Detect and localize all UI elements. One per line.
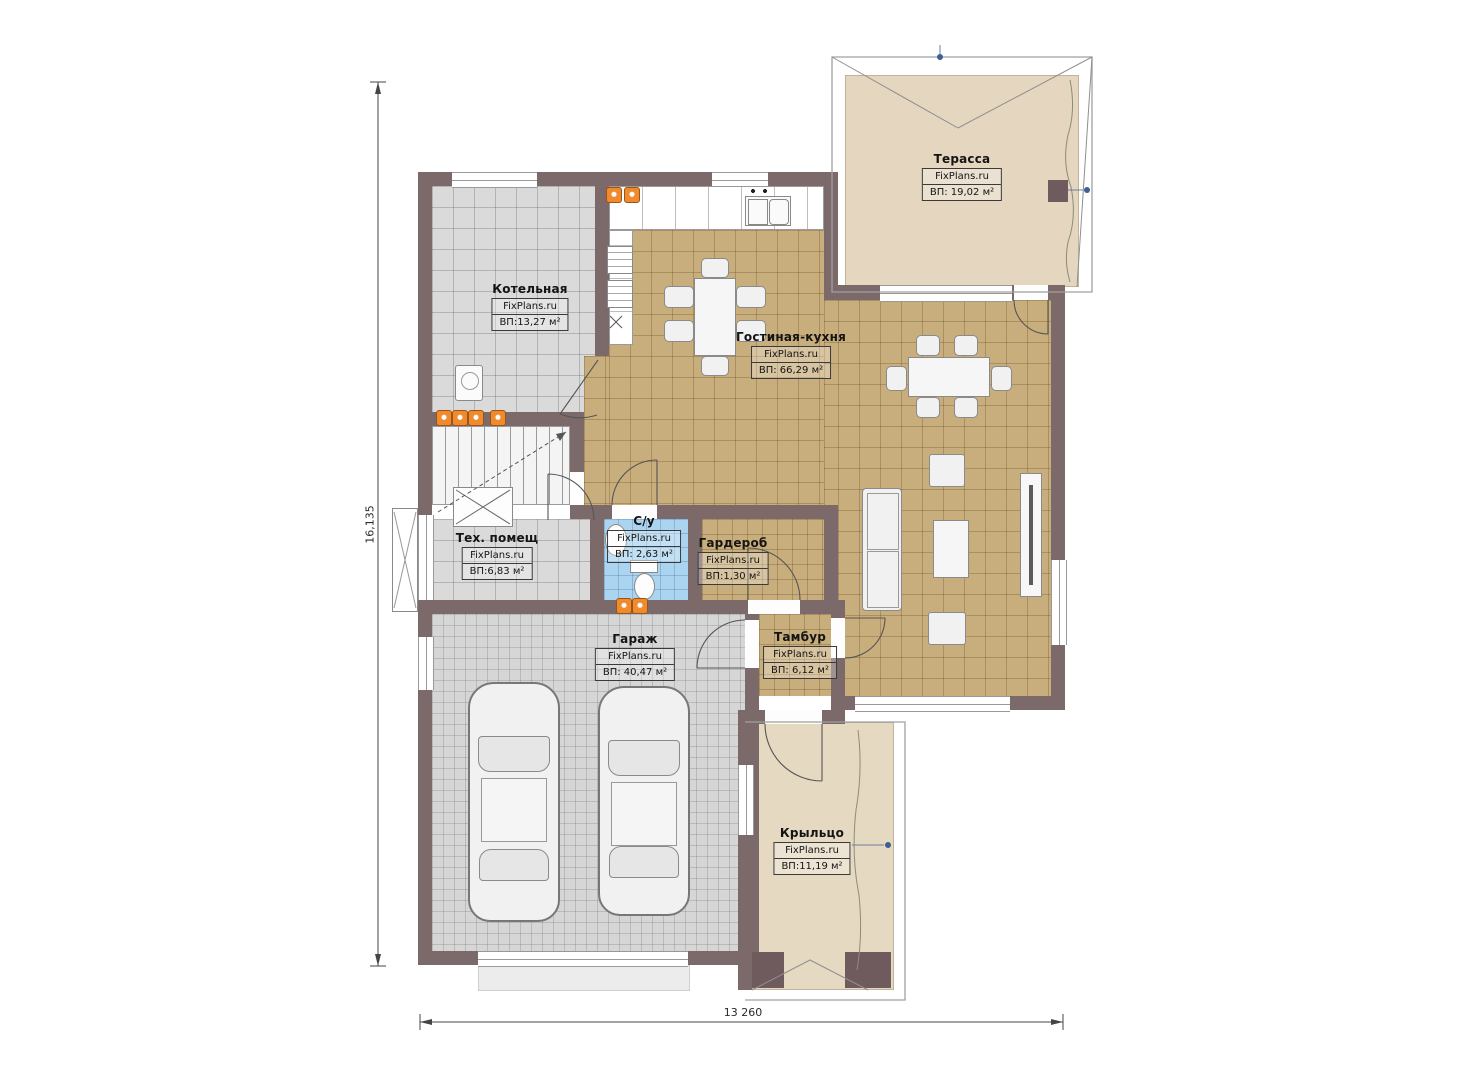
- room-info-box: FixPlans.ru ВП: 2,63 м²: [607, 530, 681, 563]
- watermark: FixPlans.ru: [608, 531, 680, 546]
- room-area: ВП:13,27 м²: [492, 314, 567, 330]
- room-info-box: FixPlans.ru ВП: 66,29 м²: [751, 346, 831, 379]
- chair: [886, 366, 907, 391]
- room-label-tech: Тех. помещ FixPlans.ru ВП:6,83 м²: [456, 531, 539, 580]
- tv-screen: [1029, 485, 1033, 585]
- kitchen-sink-basin-right: [769, 199, 789, 225]
- room-label-garage: Гараж FixPlans.ru ВП: 40,47 м²: [595, 632, 675, 681]
- room-info-box: FixPlans.ru ВП:13,27 м²: [491, 298, 568, 331]
- room-area: ВП:1,30 м²: [699, 568, 768, 584]
- chair: [954, 335, 978, 356]
- dim-arrow: [420, 1019, 432, 1025]
- room-area: ВП: 19,02 м²: [923, 184, 1001, 200]
- wall-kitchen-east: [824, 172, 838, 300]
- dimension-label-horizontal: 13 260: [698, 1006, 788, 1019]
- room-area: ВП: 2,63 м²: [608, 546, 680, 562]
- chair: [954, 397, 978, 418]
- sofa-cushion: [867, 551, 899, 608]
- room-label-wardrobe: Гардероб FixPlans.ru ВП:1,30 м²: [698, 536, 769, 585]
- watermark: FixPlans.ru: [463, 548, 532, 563]
- radiator-symbol: [624, 187, 640, 203]
- room-info-box: FixPlans.ru ВП:1,30 м²: [698, 552, 769, 585]
- room-name: Гостиная-кухня: [736, 330, 846, 344]
- room-area: ВП: 6,12 м²: [764, 662, 836, 678]
- room-area: ВП:11,19 м²: [774, 858, 849, 874]
- floor-plan-canvas: Терасса FixPlans.ru ВП: 19,02 м² Котельн…: [0, 0, 1474, 1080]
- room-info-box: FixPlans.ru ВП:6,83 м²: [462, 547, 533, 580]
- room-label-vestibule: Тамбур FixPlans.ru ВП: 6,12 м²: [763, 630, 837, 679]
- chair: [991, 366, 1012, 391]
- wall-wardrobe-right: [824, 505, 838, 614]
- chair: [736, 286, 766, 308]
- room-name: Терасса: [922, 152, 1002, 166]
- sofa-cushion: [867, 493, 899, 550]
- dimension-label-vertical: 16,135: [364, 495, 377, 555]
- radiator-symbol: [616, 598, 632, 614]
- floor-hall: [584, 356, 609, 505]
- room-label-porch: Крыльцо FixPlans.ru ВП:11,19 м²: [773, 826, 850, 875]
- watermark: FixPlans.ru: [596, 649, 674, 664]
- car-rear-window: [609, 846, 679, 878]
- watermark: FixPlans.ru: [774, 843, 849, 858]
- armchair: [928, 612, 966, 645]
- window-boiler-top: [452, 172, 537, 188]
- dim-marker-dot: [937, 54, 943, 60]
- boiler-unit-dial: [461, 372, 479, 390]
- car-windshield: [608, 740, 680, 776]
- garage-door-opening: [478, 951, 688, 967]
- kitchen-sink-basin-left: [748, 199, 768, 225]
- room-name: Тех. помещ: [456, 531, 539, 545]
- room-label-bathroom: С/у FixPlans.ru ВП: 2,63 м²: [607, 514, 681, 563]
- window-garage-left: [418, 637, 434, 690]
- wall-porch-left: [738, 710, 752, 990]
- armchair: [929, 454, 965, 487]
- door-gap-vestibule-garage: [745, 620, 759, 668]
- window-living-right: [1051, 560, 1067, 645]
- pier-terrace: [1048, 180, 1068, 202]
- dim-arrow: [375, 82, 381, 94]
- room-area: ВП: 40,47 м²: [596, 664, 674, 680]
- dim-marker-dot: [1084, 187, 1090, 193]
- room-area: ВП:6,83 м²: [463, 563, 532, 579]
- room-name: Тамбур: [763, 630, 837, 644]
- door-gap-wardrobe: [748, 600, 800, 614]
- window-living-bottom: [855, 696, 1010, 712]
- window-terrace-wall: [880, 285, 1012, 302]
- dim-arrow: [375, 954, 381, 966]
- chair: [701, 258, 729, 278]
- pier-porch-right: [845, 952, 891, 988]
- pier-porch-left: [752, 952, 784, 988]
- door-gap-entrance: [765, 710, 822, 724]
- wall-stairs-right: [570, 412, 584, 472]
- watermark: FixPlans.ru: [699, 553, 768, 568]
- kitchen-appliance-fridge: [607, 280, 633, 308]
- chair: [916, 335, 940, 356]
- radiator-symbol: [606, 187, 622, 203]
- room-area: ВП: 66,29 м²: [752, 362, 830, 378]
- watermark: FixPlans.ru: [923, 169, 1001, 184]
- room-name: Котельная: [491, 282, 568, 296]
- room-label-boiler: Котельная FixPlans.ru ВП:13,27 м²: [491, 282, 568, 331]
- car: [468, 682, 560, 922]
- radiator-symbol: [452, 410, 468, 426]
- chair: [664, 286, 694, 308]
- radiator-symbol: [468, 410, 484, 426]
- room-info-box: FixPlans.ru ВП: 19,02 м²: [922, 168, 1002, 201]
- wall-right: [1051, 285, 1065, 710]
- dim-arrow: [1051, 1019, 1063, 1025]
- window-porch-left: [738, 765, 754, 835]
- stove-burners: [749, 187, 771, 195]
- room-info-box: FixPlans.ru ВП:11,19 м²: [773, 842, 850, 875]
- radiator-symbol: [632, 598, 648, 614]
- bay-window-box: [392, 508, 418, 612]
- room-info-box: FixPlans.ru ВП: 40,47 м²: [595, 648, 675, 681]
- car-roof: [611, 782, 677, 846]
- watermark: FixPlans.ru: [752, 347, 830, 362]
- radiator-symbol: [490, 410, 506, 426]
- room-name: Гараж: [595, 632, 675, 646]
- room-info-box: FixPlans.ru ВП: 6,12 м²: [763, 646, 837, 679]
- chair: [664, 320, 694, 342]
- toilet-bowl: [634, 573, 655, 600]
- kitchen-appliance-oven: [607, 246, 633, 274]
- chair: [701, 356, 729, 376]
- coffee-table: [933, 520, 969, 578]
- kitchen-counter-top: [609, 186, 824, 230]
- room-label-terrace: Терасса FixPlans.ru ВП: 19,02 м²: [922, 152, 1002, 201]
- room-name: Крыльцо: [773, 826, 850, 840]
- car: [598, 686, 690, 916]
- watermark: FixPlans.ru: [492, 299, 567, 314]
- chair: [916, 397, 940, 418]
- car-windshield: [478, 736, 550, 772]
- kitchen-table: [694, 278, 736, 356]
- radiator-symbol: [436, 410, 452, 426]
- room-name: Гардероб: [698, 536, 769, 550]
- dining-table: [908, 357, 990, 397]
- room-label-living-kitchen: Гостиная-кухня FixPlans.ru ВП: 66,29 м²: [736, 330, 846, 379]
- window-tech-left: [418, 515, 434, 600]
- room-name: С/у: [607, 514, 681, 528]
- wall-bath-left: [590, 505, 604, 614]
- car-roof: [481, 778, 547, 842]
- car-rear-window: [479, 849, 549, 881]
- washing-machine: [453, 487, 513, 527]
- door-gap-terrace: [1014, 285, 1048, 300]
- watermark: FixPlans.ru: [764, 647, 836, 662]
- driveway-apron: [478, 965, 690, 991]
